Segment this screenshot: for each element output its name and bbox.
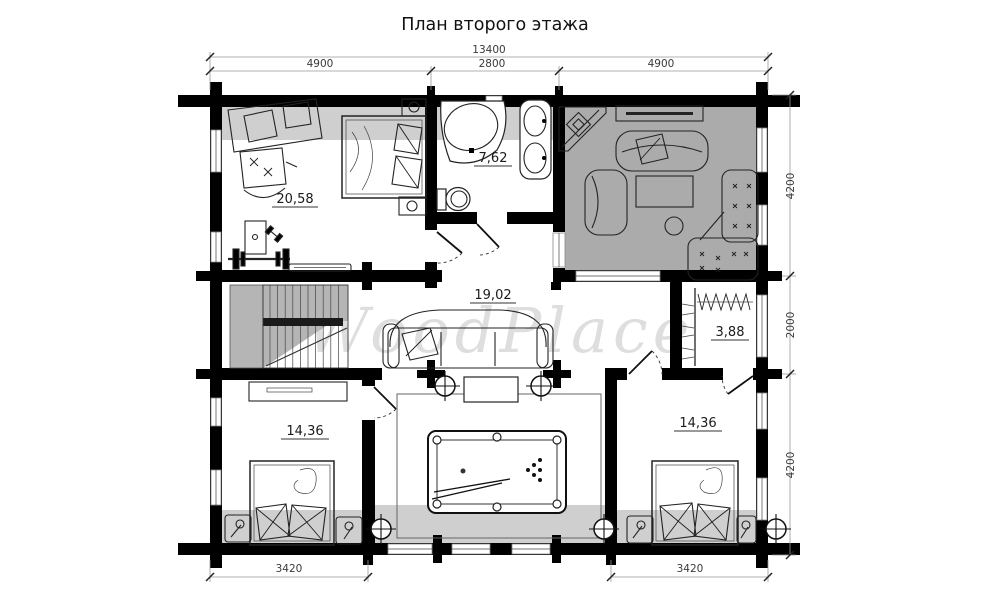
chimney <box>464 377 518 402</box>
room-area-label: 3,88 <box>716 325 745 340</box>
room-area-label: 20,58 <box>276 192 313 207</box>
window <box>211 130 221 172</box>
living-room-floor <box>565 107 756 274</box>
window <box>757 128 767 172</box>
dim-right-bottom: 4200 <box>785 452 797 479</box>
dim-top-mid: 2800 <box>479 58 506 70</box>
dim-bottom-right: 3420 <box>677 563 704 575</box>
window <box>512 544 550 554</box>
dim-right-top: 4200 <box>785 173 797 200</box>
dim-top-left: 4900 <box>307 58 334 70</box>
window <box>757 393 767 429</box>
cased-opening <box>553 233 565 267</box>
dim-top-total: 13400 <box>472 44 505 56</box>
window <box>388 544 432 554</box>
dim-right-mid: 2000 <box>785 312 797 339</box>
floor-plan: WoodPlace <box>0 0 1000 600</box>
toilet-icon <box>437 188 470 211</box>
window <box>757 295 767 357</box>
dim-top-right: 4900 <box>648 58 675 70</box>
window <box>211 232 221 262</box>
room-area-label: 14,36 <box>679 416 716 431</box>
room-area-label: 14,36 <box>286 424 323 439</box>
cased-opening <box>576 271 660 281</box>
watermark: WoodPlace <box>306 294 695 367</box>
page-title: План второго этажа <box>401 15 589 35</box>
room-area-label: 19,02 <box>474 288 511 303</box>
sink-icon <box>520 100 551 179</box>
window <box>211 470 221 505</box>
billiard-table-icon <box>428 431 566 513</box>
window <box>452 544 490 554</box>
room-area-label: 7,62 <box>479 151 508 166</box>
dim-bottom-left: 3420 <box>276 563 303 575</box>
window <box>757 478 767 520</box>
window <box>211 398 221 426</box>
